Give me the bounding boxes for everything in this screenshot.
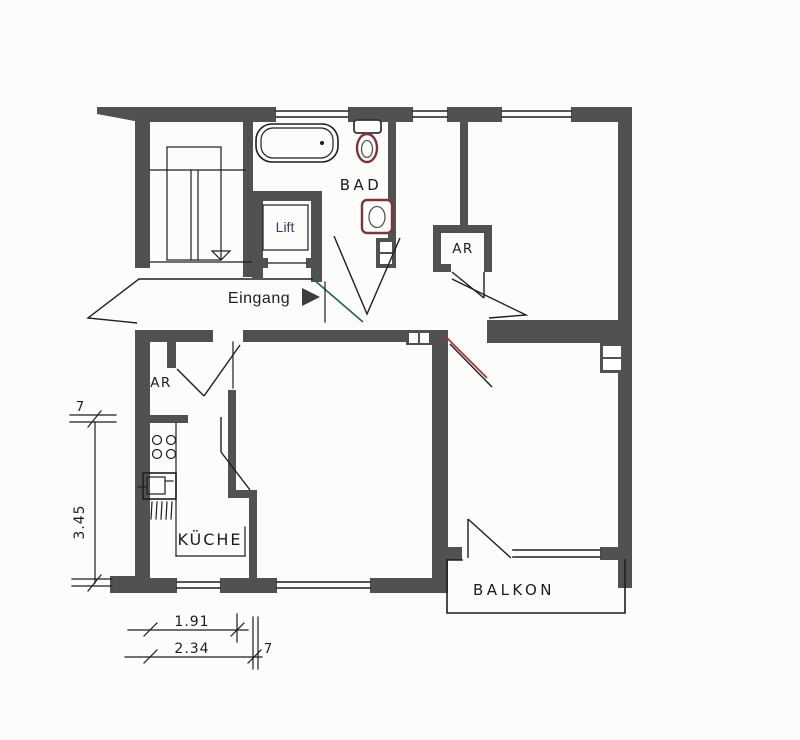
living-door-swing: [450, 344, 492, 387]
window-bottom-2: [277, 582, 370, 588]
floor-plan-page: Lift BAD: [0, 0, 800, 740]
lift-label: Lift: [276, 219, 295, 235]
corridor-radiator: [406, 330, 432, 345]
dim-wall-bottom: 7: [264, 642, 272, 657]
wall-room-divider-vert: [432, 330, 448, 583]
dim-kitchen-inner: 1.91: [174, 614, 209, 630]
wall-kitchen-a: [228, 390, 236, 492]
wall-kitchen-b: [249, 498, 257, 578]
wall-top-3: [447, 107, 502, 122]
living-door-swing-red: [444, 335, 487, 378]
wall-bedroom-south: [487, 320, 618, 343]
wall-ar-bottom-stub: [167, 342, 176, 368]
dim-left: 7 3.45: [70, 400, 116, 591]
wall-living-south-1: [448, 547, 462, 560]
entrance-direction-triangle: [302, 288, 320, 306]
wall-corridor-south-1: [150, 330, 213, 342]
wall-corridor-south-2: [243, 330, 432, 342]
wall-kitchen-jog: [228, 490, 257, 498]
storage-bottom-label: AR: [150, 375, 172, 391]
balcony: BALKON: [447, 560, 625, 613]
storage-top-door-swing: [452, 272, 484, 298]
wall-bottom-1: [150, 578, 177, 593]
dim-kitchen-outer: 2.34: [174, 641, 209, 657]
bathroom-label: BAD: [340, 176, 383, 194]
kitchen-sink: [138, 473, 176, 499]
wall-living-south-2: [600, 547, 618, 560]
wall-top-1: [97, 107, 276, 122]
wall-ar-bottom-south: [145, 415, 188, 423]
wall-bedroom-left: [460, 122, 468, 225]
bathtub: [256, 124, 338, 162]
wall-bottom-2: [220, 578, 277, 593]
wall-bottom-stub: [110, 576, 150, 593]
stove: [153, 436, 176, 459]
floor-plan-svg: Lift BAD: [0, 0, 800, 740]
hall-door-swings: [177, 345, 240, 396]
kitchen-label: KÜCHE: [177, 530, 242, 549]
dim-wall-left: 7: [76, 400, 84, 415]
wall-left-upper: [135, 114, 150, 268]
staircase: [150, 147, 252, 262]
window-top-3: [502, 111, 571, 117]
window-bottom-1: [177, 582, 220, 588]
entrance-label: Eingang: [228, 290, 290, 307]
storage-top-label: AR: [452, 241, 474, 257]
wall-stair-divider: [243, 122, 253, 277]
living-radiator: [600, 343, 625, 373]
living-room-arrow-outline: [452, 279, 526, 318]
dim-bottom: 1.91 2.34 7: [125, 614, 272, 669]
wash-basin: [362, 200, 392, 233]
wall-left-lower: [135, 330, 150, 583]
window-top-1: [276, 111, 348, 117]
balcony-label: BALKON: [473, 581, 555, 599]
room-storage-bottom: AR: [150, 375, 172, 391]
lift-shaft: Lift: [252, 191, 322, 282]
room-storage-top: AR: [433, 225, 492, 298]
toilet: [354, 120, 381, 162]
window-top-2: [413, 111, 447, 117]
room-bathroom: BAD: [256, 120, 400, 314]
room-living: [444, 335, 625, 558]
balcony-door-swing: [468, 519, 511, 558]
dim-kitchen-depth: 3.45: [72, 504, 88, 539]
kitchen-hatch: [151, 502, 172, 519]
window-living-south: [513, 550, 600, 557]
